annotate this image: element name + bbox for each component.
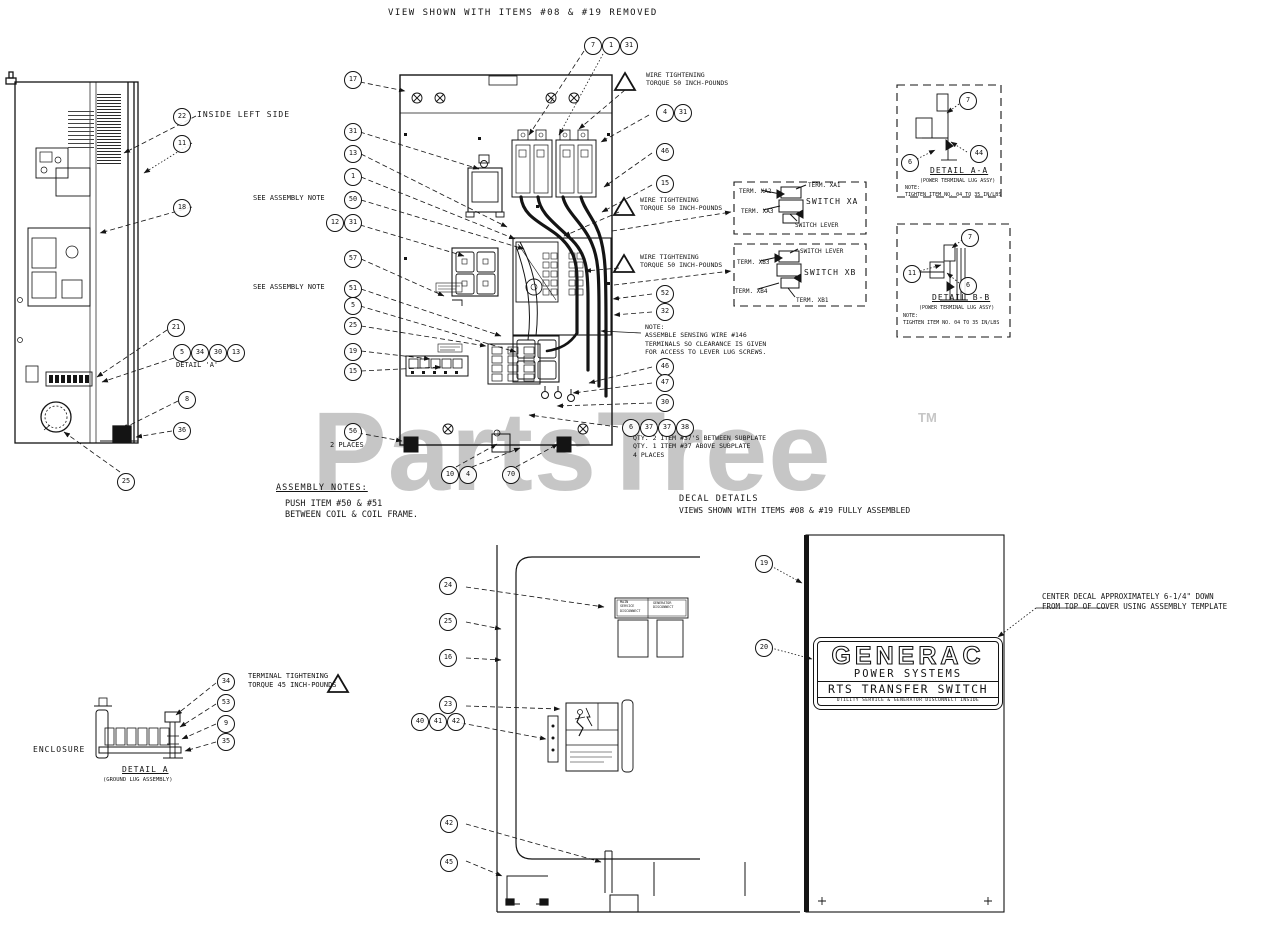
label-switch-lever-b: SWITCH LEVER [800, 248, 843, 256]
callout-balloon-34: 34 [191, 344, 209, 362]
label-switch-xa: SWITCH XA [806, 197, 858, 207]
detail-aa-graphic [916, 94, 957, 160]
callout-balloon-17: 17 [344, 71, 362, 89]
callout-balloon-9: 9 [217, 715, 235, 733]
callout-balloon-13: 13 [344, 145, 362, 163]
callout-balloon-56: 56 [344, 423, 362, 441]
sensing-wires [516, 242, 575, 402]
leader-lines [64, 51, 1036, 876]
label-detail-a-ref: DETAIL 'A' [176, 361, 218, 370]
label-detail-bb-sub: (POWER TERMINAL LUG ASSY) [919, 305, 994, 312]
label-decal-details-sub: VIEWS SHOWN WITH ITEMS #08 & #19 FULLY A… [679, 506, 910, 516]
label-assembly-notes-body: PUSH ITEM #50 & #51 BETWEEN COIL & COIL … [285, 499, 418, 521]
decal-footnote-text: UTILITY SERVICE & GENERATOR DISCONNECT I… [818, 697, 998, 705]
label-decal-small-1: MAIN SERVICE DISCONNECT [620, 600, 640, 613]
parts-diagram: PartsTree TM GENERAC POWER SYSTEMS RTS T… [0, 0, 1280, 929]
label-detail-a-title: DETAIL A [122, 765, 169, 775]
label-center-decal-note: CENTER DECAL APPROXIMATELY 6-1/4" DOWN F… [1042, 592, 1227, 612]
callout-balloon-37: 37 [658, 419, 676, 437]
callout-balloon-24: 24 [439, 577, 457, 595]
decal-sub-text: POWER SYSTEMS [854, 669, 962, 681]
callout-balloon-15: 15 [344, 363, 362, 381]
callout-balloon-19: 19 [344, 343, 362, 361]
callout-balloon-11: 11 [903, 265, 921, 283]
label-view-title: VIEW SHOWN WITH ITEMS #08 & #19 REMOVED [388, 8, 658, 20]
callout-balloon-45: 45 [440, 854, 458, 872]
callout-balloon-31: 31 [344, 123, 362, 141]
contactor-blocks [512, 130, 596, 197]
callout-balloon-21: 21 [167, 319, 185, 337]
callout-balloon-8: 8 [178, 391, 196, 409]
mounting-screws [412, 93, 588, 434]
transformer [466, 155, 504, 217]
callout-balloon-5: 5 [173, 344, 191, 362]
callout-balloon-31: 31 [674, 104, 692, 122]
callout-balloon-42: 42 [447, 713, 465, 731]
label-term-xb4: TERM. XB4 [735, 288, 768, 296]
label-decal-small-2: GENERATOR DISCONNECT [653, 601, 673, 610]
label-warn-mid: WIRE TIGHTENING TORQUE 50 INCH-POUNDS [640, 196, 722, 213]
label-switch-lever-a: SWITCH LEVER [795, 222, 838, 230]
label-warn-top: WIRE TIGHTENING TORQUE 50 INCH-POUNDS [646, 71, 728, 88]
decal-brand-text: GENERAC [831, 643, 984, 669]
label-term-xb3: TERM. XB3 [737, 259, 770, 267]
label-see-note-50: SEE ASSEMBLY NOTE [253, 194, 325, 203]
callout-balloon-10: 10 [441, 466, 459, 484]
neutral-strip [406, 356, 468, 376]
label-decal-details: DECAL DETAILS [679, 494, 759, 505]
callout-balloon-4: 4 [459, 466, 477, 484]
label-see-note-51: SEE ASSEMBLY NOTE [253, 283, 325, 292]
callout-balloon-30: 30 [656, 394, 674, 412]
coil-assembly-upper [452, 248, 498, 306]
callout-balloon-32: 32 [656, 303, 674, 321]
callout-balloon-44: 44 [970, 145, 988, 163]
callout-balloon-51: 51 [344, 280, 362, 298]
generac-cover-decal: GENERAC POWER SYSTEMS RTS TRANSFER SWITC… [813, 637, 1003, 710]
callout-balloon-11: 11 [173, 135, 191, 153]
switch-levers [758, 185, 806, 297]
label-assembly-notes: ASSEMBLY NOTES: [276, 483, 368, 494]
callout-balloon-57: 57 [344, 250, 362, 268]
callout-balloon-6: 6 [901, 154, 919, 172]
callout-balloon-5: 5 [344, 297, 362, 315]
decal-product-text: RTS TRANSFER SWITCH [818, 681, 998, 697]
callout-balloon-42: 42 [440, 815, 458, 833]
label-term-xb1: TERM. XB1 [796, 297, 829, 305]
callout-balloon-22: 22 [173, 108, 191, 126]
callout-balloon-13: 13 [227, 344, 245, 362]
callout-balloon-23: 23 [439, 696, 457, 714]
label-lines-block [68, 108, 94, 148]
fuse-block [488, 344, 540, 384]
label-detail-bb-title: DETAIL B-B [932, 293, 990, 303]
template-squares [618, 620, 683, 657]
callout-balloon-46: 46 [656, 143, 674, 161]
callout-balloon-31: 31 [620, 37, 638, 55]
callout-balloon-6: 6 [959, 277, 977, 295]
callout-balloon-12: 12 [326, 214, 344, 232]
label-term-xa1: TERM. XA1 [808, 182, 841, 190]
callout-balloon-47: 47 [656, 374, 674, 392]
callout-balloon-70: 70 [502, 466, 520, 484]
label-term-xa2: TERM. XA2 [739, 188, 772, 196]
callout-balloon-50: 50 [344, 191, 362, 209]
callout-balloon-19: 19 [755, 555, 773, 573]
diagram-linework [0, 0, 1280, 929]
label-two-places: 2 PLACES [330, 441, 364, 450]
label-detail-aa-note: NOTE: TIGHTEN ITEM NO. 04 TO 35 IN/LBS [905, 185, 1001, 198]
label-terminal-torque: TERMINAL TIGHTENING TORQUE 45 INCH-POUND… [248, 672, 337, 690]
callout-balloon-18: 18 [173, 199, 191, 217]
callout-balloon-25: 25 [117, 473, 135, 491]
callout-balloon-40: 40 [411, 713, 429, 731]
label-warn-low: WIRE TIGHTENING TORQUE 50 INCH-POUNDS [640, 253, 722, 270]
callout-balloon-1: 1 [344, 168, 362, 186]
label-detail-a-sub: (GROUND LUG ASSEMBLY) [103, 777, 173, 784]
callout-balloon-16: 16 [439, 649, 457, 667]
callout-balloon-20: 20 [755, 639, 773, 657]
label-detail-bb-note: NOTE: TIGHTEN ITEM NO. 04 TO 35 IN/LBS [903, 313, 999, 326]
callout-balloon-37: 37 [640, 419, 658, 437]
panel-feet [404, 430, 571, 452]
label-qty-note: QTY. 2 ITEM #37'S BETWEEN SUBPLATE QTY. … [633, 434, 766, 459]
callout-balloon-36: 36 [173, 422, 191, 440]
label-detail-aa-title: DETAIL A-A [930, 166, 988, 176]
main-panel [400, 75, 612, 445]
callout-balloon-35: 35 [217, 733, 235, 751]
label-detail-aa-sub: (POWER TERMINAL LUG ASSY) [920, 178, 995, 185]
label-enclosure: ENCLOSURE [33, 745, 85, 755]
label-inside-left-side: INSIDE LEFT SIDE [197, 110, 290, 120]
danger-decal [548, 700, 633, 772]
label-hatch-block [97, 92, 121, 164]
ground-lug-detail [94, 698, 183, 758]
callout-balloon-6: 6 [622, 419, 640, 437]
callout-balloon-25: 25 [344, 317, 362, 335]
callout-balloon-7: 7 [959, 92, 977, 110]
callout-balloon-1: 1 [602, 37, 620, 55]
callout-balloon-25: 25 [439, 613, 457, 631]
callout-balloon-15: 15 [656, 175, 674, 193]
callout-balloon-53: 53 [217, 694, 235, 712]
callout-balloon-31: 31 [344, 214, 362, 232]
callout-balloon-30: 30 [209, 344, 227, 362]
callout-balloon-38: 38 [676, 419, 694, 437]
callout-balloon-41: 41 [429, 713, 447, 731]
callout-balloon-34: 34 [217, 673, 235, 691]
callout-balloon-4: 4 [656, 104, 674, 122]
callout-balloon-7: 7 [961, 229, 979, 247]
callout-balloon-7: 7 [584, 37, 602, 55]
label-sensing-note: NOTE: ASSEMBLE SENSING WIRE #146 TERMINA… [645, 323, 766, 357]
label-switch-xb: SWITCH XB [804, 268, 856, 278]
label-term-xa3: TERM. XA3 [741, 208, 774, 216]
callout-balloon-52: 52 [656, 285, 674, 303]
coil-assembly-lower [513, 336, 559, 382]
